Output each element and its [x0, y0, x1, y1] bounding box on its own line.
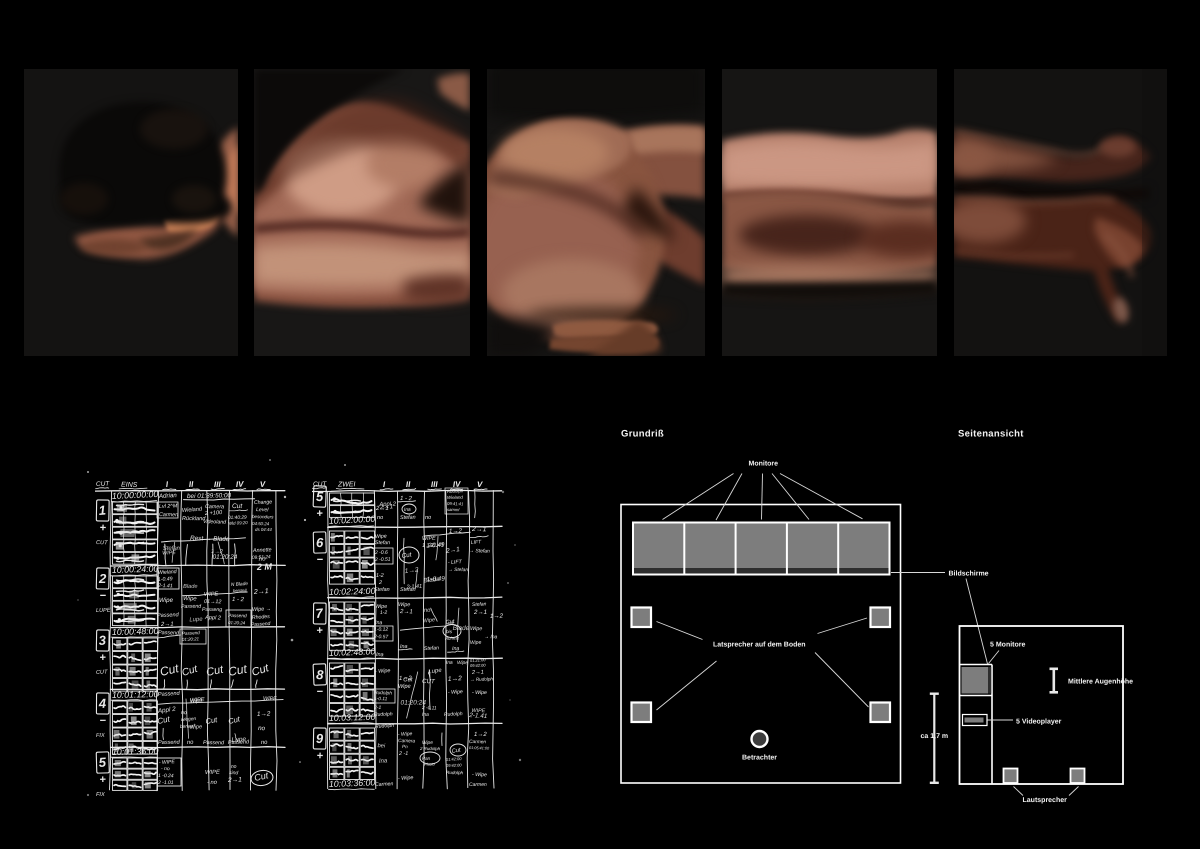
svg-text:Grundriß: Grundriß [621, 429, 664, 440]
svg-text:Seitenansicht: Seitenansicht [958, 429, 1024, 440]
svg-text:Mittlere Augenhöhe: Mittlere Augenhöhe [1068, 678, 1133, 686]
svg-text:5 Monitore: 5 Monitore [990, 641, 1025, 649]
svg-text:Lautsprecher: Lautsprecher [1023, 796, 1068, 804]
svg-text:ca 1,7 m: ca 1,7 m [921, 733, 949, 740]
svg-text:Betrachter: Betrachter [742, 754, 777, 762]
svg-text:Bildschirme: Bildschirme [949, 570, 989, 578]
svg-text:Monitore: Monitore [749, 460, 779, 468]
svg-text:Latsprecher auf dem Boden: Latsprecher auf dem Boden [713, 641, 806, 649]
svg-text:5 Videoplayer: 5 Videoplayer [1016, 718, 1062, 726]
